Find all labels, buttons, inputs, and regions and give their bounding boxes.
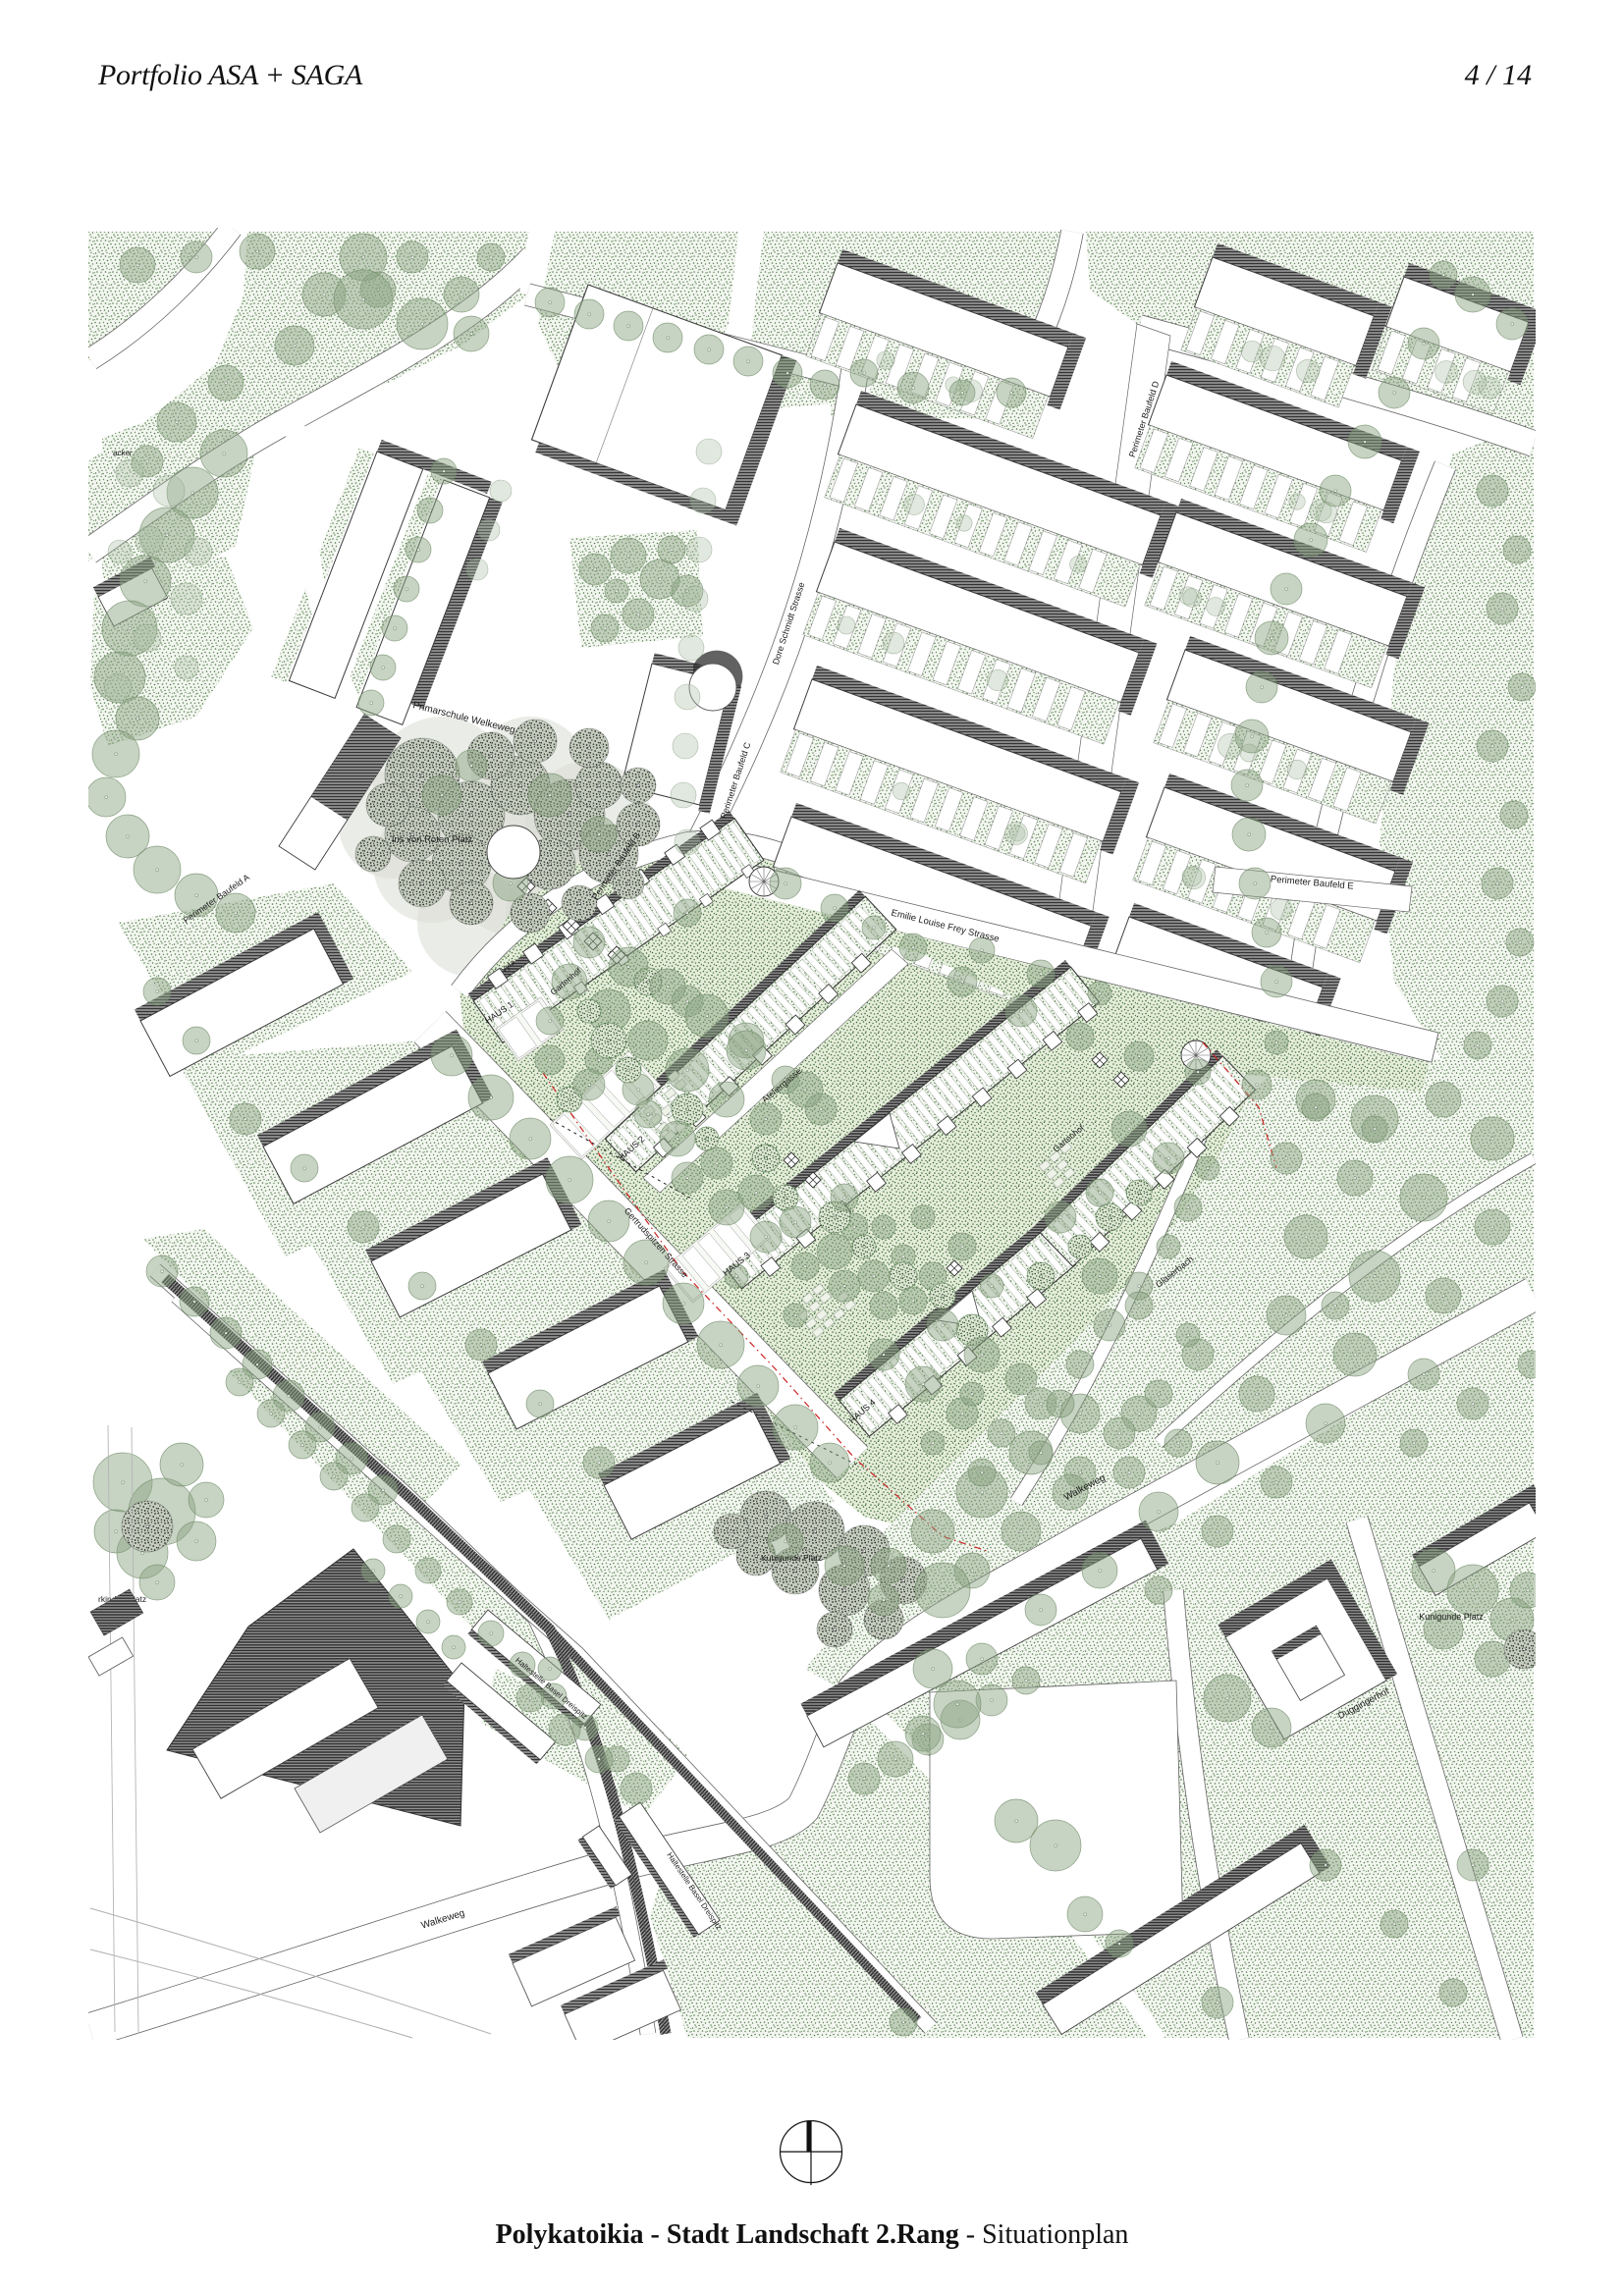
svg-text:Kunigunde Platz: Kunigunde Platz xyxy=(1419,1612,1484,1622)
svg-text:Iris von Roten Platz: Iris von Roten Platz xyxy=(392,834,473,845)
svg-text:Polykatoikia - Stadt Landschaf: Polykatoikia - Stadt Landschaft 2.Rang -… xyxy=(496,2219,1129,2250)
svg-text:acker: acker xyxy=(113,449,133,457)
svg-text:Portfolio ASA + SAGA: Portfolio ASA + SAGA xyxy=(97,59,363,91)
svg-text:Kunigunde Platz: Kunigunde Platz xyxy=(761,1553,822,1563)
svg-text:4 / 14: 4 / 14 xyxy=(1465,59,1532,91)
